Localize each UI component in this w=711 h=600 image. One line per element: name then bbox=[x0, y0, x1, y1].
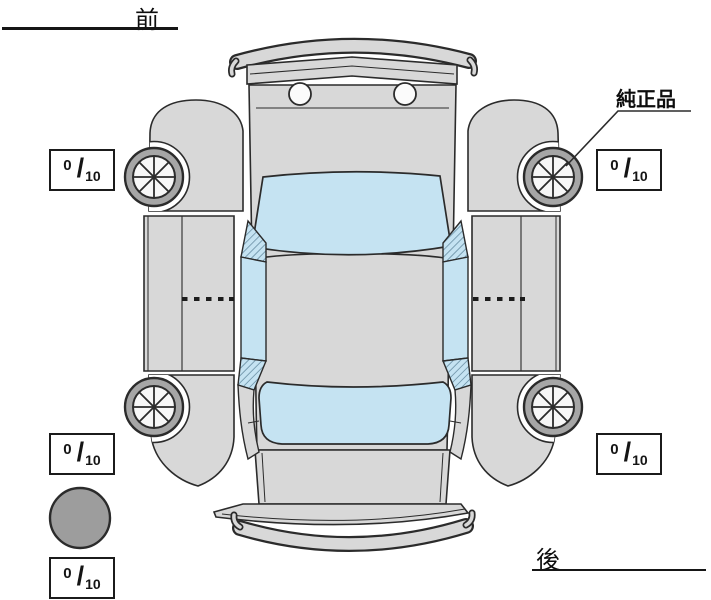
tread-separator: / bbox=[77, 155, 85, 182]
spare-tire bbox=[50, 488, 110, 548]
wheel-rear-right bbox=[524, 378, 582, 436]
door-panel-left bbox=[144, 216, 234, 371]
tread-max: 10 bbox=[85, 576, 101, 592]
wheel-front-left bbox=[125, 148, 183, 206]
genuine-part-label: 純正品 bbox=[616, 83, 676, 112]
tread-value: 0 bbox=[63, 565, 71, 582]
tread-depth-front-left: 0/10 bbox=[49, 149, 115, 191]
side-window-left bbox=[238, 221, 266, 390]
vehicle-condition-diagram: 前 純正品 後 0/10 0/10 0/10 0/10 0/10 bbox=[0, 0, 711, 600]
tread-depth-front-right: 0/10 bbox=[596, 149, 662, 191]
tread-max: 10 bbox=[85, 452, 101, 468]
wheel-front-right bbox=[524, 148, 582, 206]
tread-separator: / bbox=[624, 155, 632, 182]
car-top-view-svg bbox=[0, 0, 711, 600]
rear-window bbox=[259, 382, 451, 444]
trunk bbox=[214, 450, 468, 525]
tread-value: 0 bbox=[63, 157, 71, 174]
tread-depth-rear-left: 0/10 bbox=[49, 433, 115, 475]
tread-value: 0 bbox=[610, 157, 618, 174]
tread-depth-rear-right: 0/10 bbox=[596, 433, 662, 475]
hood-vent-right bbox=[394, 83, 416, 105]
rear-label-underline bbox=[532, 569, 706, 571]
side-window-right bbox=[443, 221, 471, 390]
door-panel-right bbox=[472, 216, 560, 371]
wheel-rear-left bbox=[125, 378, 183, 436]
tread-max: 10 bbox=[632, 168, 648, 184]
windshield bbox=[252, 172, 451, 255]
front-label-underline bbox=[2, 27, 178, 30]
front-cowl-panel bbox=[247, 57, 457, 84]
tread-max: 10 bbox=[632, 452, 648, 468]
tread-separator: / bbox=[77, 563, 85, 590]
tread-separator: / bbox=[624, 439, 632, 466]
tread-value: 0 bbox=[610, 441, 618, 458]
tread-max: 10 bbox=[85, 168, 101, 184]
tread-depth-spare: 0/10 bbox=[49, 557, 115, 599]
tread-value: 0 bbox=[63, 441, 71, 458]
tread-separator: / bbox=[77, 439, 85, 466]
c-pillar-right bbox=[450, 385, 471, 459]
hood-vent-left bbox=[289, 83, 311, 105]
